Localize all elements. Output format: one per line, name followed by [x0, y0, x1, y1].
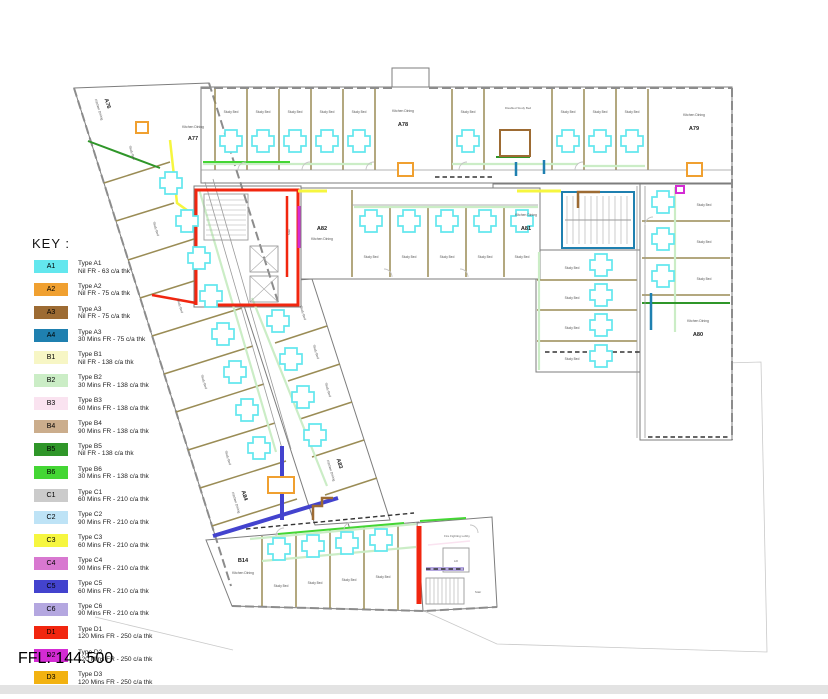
key-swatch: D3 [34, 671, 68, 684]
key-type-label: Type B3 [78, 397, 149, 405]
key-row: B4 Type B4 90 Mins FR - 138 c/a thk [10, 420, 170, 435]
unit-label-a82: A82 [317, 226, 327, 232]
unit-label-b14: B14 [238, 558, 249, 564]
key-rating-label: Nil FR - 63 c/a thk [78, 268, 130, 276]
key-text: Type A3 Nil FR - 75 c/a thk [78, 306, 130, 321]
study-bed-label: Study Bed [697, 203, 712, 207]
key-row: C1 Type C1 60 Mins FR - 210 c/a thk [10, 489, 170, 504]
study-bed-label: Study Bed [402, 255, 417, 259]
key-legend: KEY : A1 Type A1 Nil FR - 63 c/a thk A2 … [10, 236, 170, 694]
key-type-label: Type A3 [78, 329, 145, 337]
study-bed-label: Study Bed [274, 584, 289, 588]
key-type-label: Type B5 [78, 443, 134, 451]
unit-label-a77: A77 [188, 136, 198, 142]
key-swatch: B5 [34, 443, 68, 456]
key-text: Type B1 Nil FR - 138 c/a thk [78, 351, 134, 366]
key-row: B1 Type B1 Nil FR - 138 c/a thk [10, 351, 170, 366]
key-rating-label: 60 Mins FR - 210 c/a thk [78, 542, 149, 550]
kitchen-dining-label: Kitchen Dining [687, 319, 709, 323]
study-bed-label: Study Bed [256, 110, 271, 114]
study-bed-label: Study Bed [565, 357, 580, 361]
key-row: A3 Type A3 Nil FR - 75 c/a thk [10, 306, 170, 321]
key-text: Type B4 90 Mins FR - 138 c/a thk [78, 420, 149, 435]
key-type-label: Type B2 [78, 374, 149, 382]
key-rating-label: Nil FR - 75 c/a thk [78, 313, 130, 321]
key-type-label: Type C5 [78, 580, 149, 588]
kitchen-dining-label: Kitchen Dining [392, 109, 414, 113]
key-type-label: Type C6 [78, 603, 149, 611]
study-bed-label: Study Bed [565, 266, 580, 270]
key-swatch: C2 [34, 511, 68, 524]
study-bed-label: Study Bed [478, 255, 493, 259]
key-swatch: B3 [34, 397, 68, 410]
key-text: Type B6 30 Mins FR - 138 c/a thk [78, 466, 149, 481]
stair-label: Stair [287, 229, 291, 235]
wing-right [640, 184, 732, 440]
key-text: Type A1 Nil FR - 63 c/a thk [78, 260, 130, 275]
study-bed-label: Study Bed [697, 240, 712, 244]
study-bed-label: Study Bed [320, 110, 335, 114]
key-text: Type C3 60 Mins FR - 210 c/a thk [78, 534, 149, 549]
key-text: Type A3 30 Mins FR - 75 c/a thk [78, 329, 145, 344]
study-bed-label: Study Bed [461, 110, 476, 114]
study-bed-label: Study Bed [565, 296, 580, 300]
kitchen-dining-label: Kitchen Dining [683, 113, 705, 117]
key-text: Type C1 60 Mins FR - 210 c/a thk [78, 489, 149, 504]
key-row: C4 Type C4 90 Mins FR - 210 c/a thk [10, 557, 170, 572]
key-text: Type D1 120 Mins FR - 250 c/a thk [78, 626, 152, 641]
key-rating-label: 30 Mins FR - 138 c/a thk [78, 382, 149, 390]
study-bed-label: Study Bed [515, 255, 530, 259]
block-fire-lobby [417, 517, 497, 611]
key-swatch: C5 [34, 580, 68, 593]
key-swatch: A4 [34, 329, 68, 342]
study-bed-label: Study Bed [352, 110, 367, 114]
unit-label-a78: A78 [398, 122, 408, 128]
key-swatch: B6 [34, 466, 68, 479]
key-row: D1 Type D1 120 Mins FR - 250 c/a thk [10, 626, 170, 641]
kitchen-dining-label: Kitchen Dining [232, 571, 254, 575]
key-type-label: Type A3 [78, 306, 130, 314]
key-swatch: D1 [34, 626, 68, 639]
key-text: Type B3 60 Mins FR - 138 c/a thk [78, 397, 149, 412]
key-swatch: B1 [34, 351, 68, 364]
key-swatch: C1 [34, 489, 68, 502]
key-rating-label: 60 Mins FR - 210 c/a thk [78, 588, 149, 596]
key-type-label: Type B6 [78, 466, 149, 474]
key-type-label: Type D3 [78, 671, 152, 679]
key-swatch: B2 [34, 374, 68, 387]
key-type-label: Type A2 [78, 283, 130, 291]
key-type-label: Type A1 [78, 260, 130, 268]
ffl-label: FFL: 144.500 [18, 650, 113, 668]
key-type-label: Type D1 [78, 626, 152, 634]
study-bed-label: Study Bed [561, 110, 576, 114]
study-bed-label: Study Bed [376, 575, 391, 579]
study-bed-label: Study Bed [565, 326, 580, 330]
key-type-label: Type C2 [78, 511, 149, 519]
fire-fighting-lobby-label: Fire Fighting Lobby [444, 534, 470, 538]
key-rows: A1 Type A1 Nil FR - 63 c/a thk A2 Type A… [10, 260, 170, 687]
study-bed-label: Study Bed [625, 110, 640, 114]
key-swatch: A2 [34, 283, 68, 296]
key-swatch: A3 [34, 306, 68, 319]
unit-label-a79: A79 [689, 126, 699, 132]
key-rating-label: 60 Mins FR - 138 c/a thk [78, 405, 149, 413]
key-row: C2 Type C2 90 Mins FR - 210 c/a thk [10, 511, 170, 526]
key-text: Type B5 Nil FR - 138 c/a thk [78, 443, 134, 458]
key-row: B2 Type B2 30 Mins FR - 138 c/a thk [10, 374, 170, 389]
key-rating-label: 120 Mins FR - 250 c/a thk [78, 633, 152, 641]
key-row: A2 Type A2 Nil FR - 75 c/a thk [10, 283, 170, 298]
key-rating-label: 30 Mins FR - 138 c/a thk [78, 473, 149, 481]
stair-label: Stair [475, 590, 481, 594]
key-text: Type C6 90 Mins FR - 210 c/a thk [78, 603, 149, 618]
study-bed-label: Study Bed [364, 255, 379, 259]
key-text: Type A2 Nil FR - 75 c/a thk [78, 283, 130, 298]
kitchen-dining-label: Kitchen Dining [311, 237, 333, 241]
key-text: Type C5 60 Mins FR - 210 c/a thk [78, 580, 149, 595]
study-bed-label: Study Bed [224, 110, 239, 114]
key-rating-label: 90 Mins FR - 138 c/a thk [78, 428, 149, 436]
key-type-label: Type C3 [78, 534, 149, 542]
key-rating-label: Nil FR - 138 c/a thk [78, 359, 134, 367]
key-row: C3 Type C3 60 Mins FR - 210 c/a thk [10, 534, 170, 549]
key-rating-label: 90 Mins FR - 210 c/a thk [78, 519, 149, 527]
key-swatch: C6 [34, 603, 68, 616]
study-bed-label: Study Bed [342, 578, 357, 582]
key-rating-label: 60 Mins FR - 210 c/a thk [78, 496, 149, 504]
key-rating-label: 90 Mins FR - 210 c/a thk [78, 565, 149, 573]
study-bed-label: Study Bed [288, 110, 303, 114]
study-bed-label: Study Bed [440, 255, 455, 259]
key-text: Type C4 90 Mins FR - 210 c/a thk [78, 557, 149, 572]
block-bed-column [536, 250, 640, 372]
disabled-study-bed-label: Disabled Study Bed [505, 106, 532, 110]
key-type-label: Type B4 [78, 420, 149, 428]
key-text: Type C2 90 Mins FR - 210 c/a thk [78, 511, 149, 526]
key-row: B5 Type B5 Nil FR - 138 c/a thk [10, 443, 170, 458]
key-text: Type B2 30 Mins FR - 138 c/a thk [78, 374, 149, 389]
key-swatch: A1 [34, 260, 68, 273]
bottom-strip [0, 685, 828, 694]
key-rating-label: Nil FR - 75 c/a thk [78, 290, 130, 298]
kitchen-dining-label: Kitchen Dining [515, 213, 537, 217]
key-swatch: C3 [34, 534, 68, 547]
unit-label-a81: A81 [521, 226, 531, 232]
study-bed-label: Study Bed [593, 110, 608, 114]
lift-label: Lift [454, 559, 458, 563]
key-rating-label: Nil FR - 138 c/a thk [78, 450, 134, 458]
key-row: B6 Type B6 30 Mins FR - 138 c/a thk [10, 466, 170, 481]
key-swatch: B4 [34, 420, 68, 433]
study-bed-label: Study Bed [697, 277, 712, 281]
key-row: A1 Type A1 Nil FR - 63 c/a thk [10, 260, 170, 275]
kitchen-dining-label: Kitchen Dining [182, 125, 204, 129]
key-type-label: Type C4 [78, 557, 149, 565]
key-row: A4 Type A3 30 Mins FR - 75 c/a thk [10, 329, 170, 344]
study-bed-label: Study Bed [308, 581, 323, 585]
key-row: C5 Type C5 60 Mins FR - 210 c/a thk [10, 580, 170, 595]
key-rating-label: 30 Mins FR - 75 c/a thk [78, 336, 145, 344]
unit-label-a80: A80 [693, 332, 703, 338]
key-swatch: C4 [34, 557, 68, 570]
key-row: C6 Type C6 90 Mins FR - 210 c/a thk [10, 603, 170, 618]
key-rating-label: 90 Mins FR - 210 c/a thk [78, 610, 149, 618]
key-type-label: Type B1 [78, 351, 134, 359]
key-type-label: Type C1 [78, 489, 149, 497]
key-row: B3 Type B3 60 Mins FR - 138 c/a thk [10, 397, 170, 412]
key-title: KEY : [32, 236, 170, 251]
